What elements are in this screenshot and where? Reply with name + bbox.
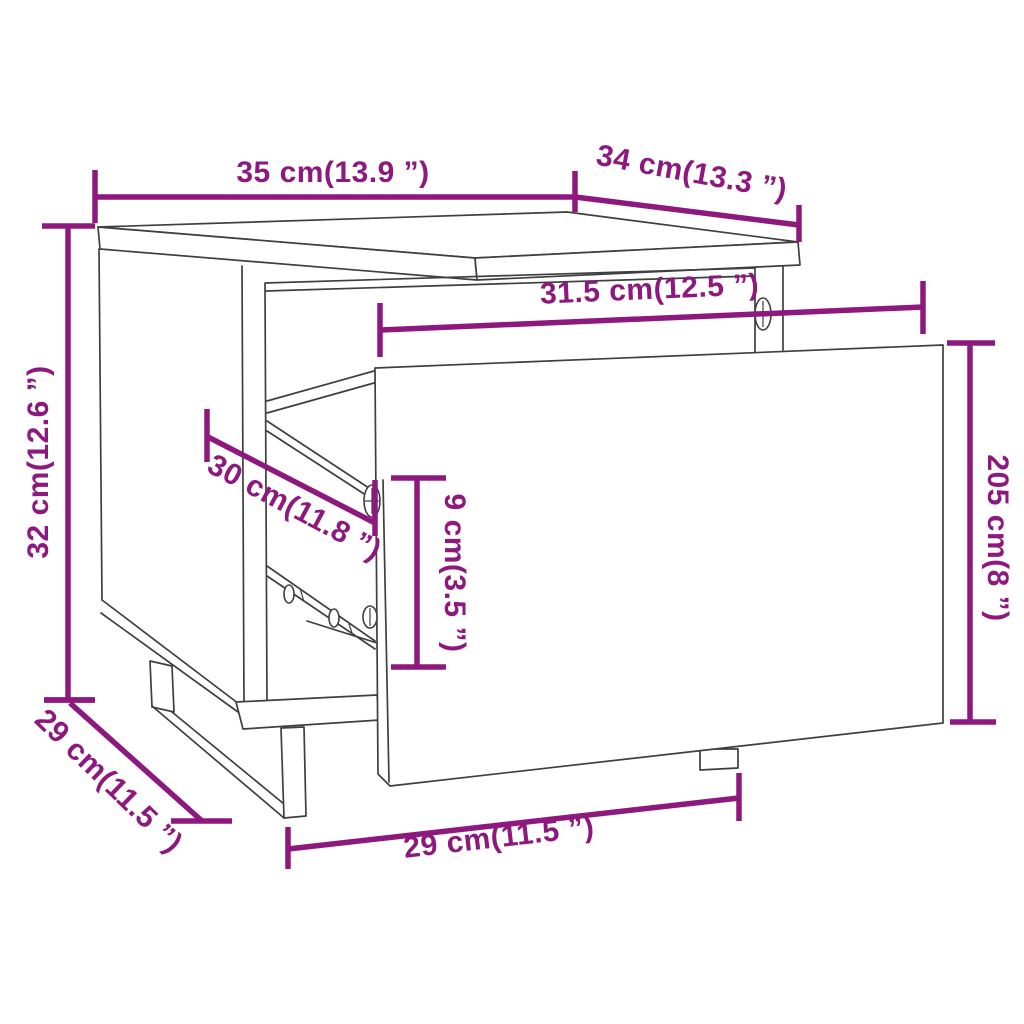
cabinet-outline [98, 212, 943, 818]
center-leg [281, 727, 306, 818]
dimension-inner-depth: 30 cm(11.8 ”) [202, 409, 387, 567]
lower-rail [267, 566, 375, 641]
dimension-label-base-depth: 29 cm(11.5 ”) [28, 703, 189, 860]
dimension-label-base-width: 29 cm(11.5 ”) [402, 810, 596, 864]
bottom-panel-edge [236, 695, 380, 729]
dimension-top-width: 35 cm(13.9 ”) [95, 156, 575, 223]
dimension-base-depth: 29 cm(11.5 ”) [28, 700, 232, 860]
rail-roller [284, 585, 294, 603]
left-leg [150, 661, 174, 712]
screw-drawer-lower [363, 606, 377, 628]
dimension-label-top-width: 35 cm(13.9 ”) [236, 156, 429, 189]
rail-roller [329, 609, 339, 627]
dimension-label-top-depth: 34 cm(13.3 ”) [594, 139, 790, 207]
dimension-base-width: 29 cm(11.5 ”) [288, 773, 739, 869]
dimension-label-inner-depth: 30 cm(11.8 ”) [202, 448, 387, 567]
rear-plinth [700, 749, 738, 770]
dimension-drawer-front-height: 205 cm(8 ”) [947, 343, 1014, 722]
dimension-overall-height: 32 cm(12.6 ”) [22, 226, 95, 700]
drawer-side-top-edge-2 [267, 383, 374, 413]
dimension-label-overall-height: 32 cm(12.6 ”) [22, 365, 55, 558]
left-outer-edge [99, 249, 102, 600]
dimension-label-drawer-side-height: 9 cm(3.5 ”) [438, 494, 471, 653]
technical-drawing-canvas: 35 cm(13.9 ”) 34 cm(13.3 ”) 31.5 cm(12.5… [0, 0, 1024, 1024]
bedside-cabinet-diagram: 35 cm(13.9 ”) 34 cm(13.3 ”) 31.5 cm(12.5… [0, 0, 1024, 1024]
dimension-label-drawer-front-height: 205 cm(8 ”) [981, 454, 1014, 621]
upper-rail [267, 421, 375, 492]
drawer-side-top-edge [267, 371, 374, 401]
dimension-inner-width: 31.5 cm(12.5 ”) [380, 268, 923, 357]
